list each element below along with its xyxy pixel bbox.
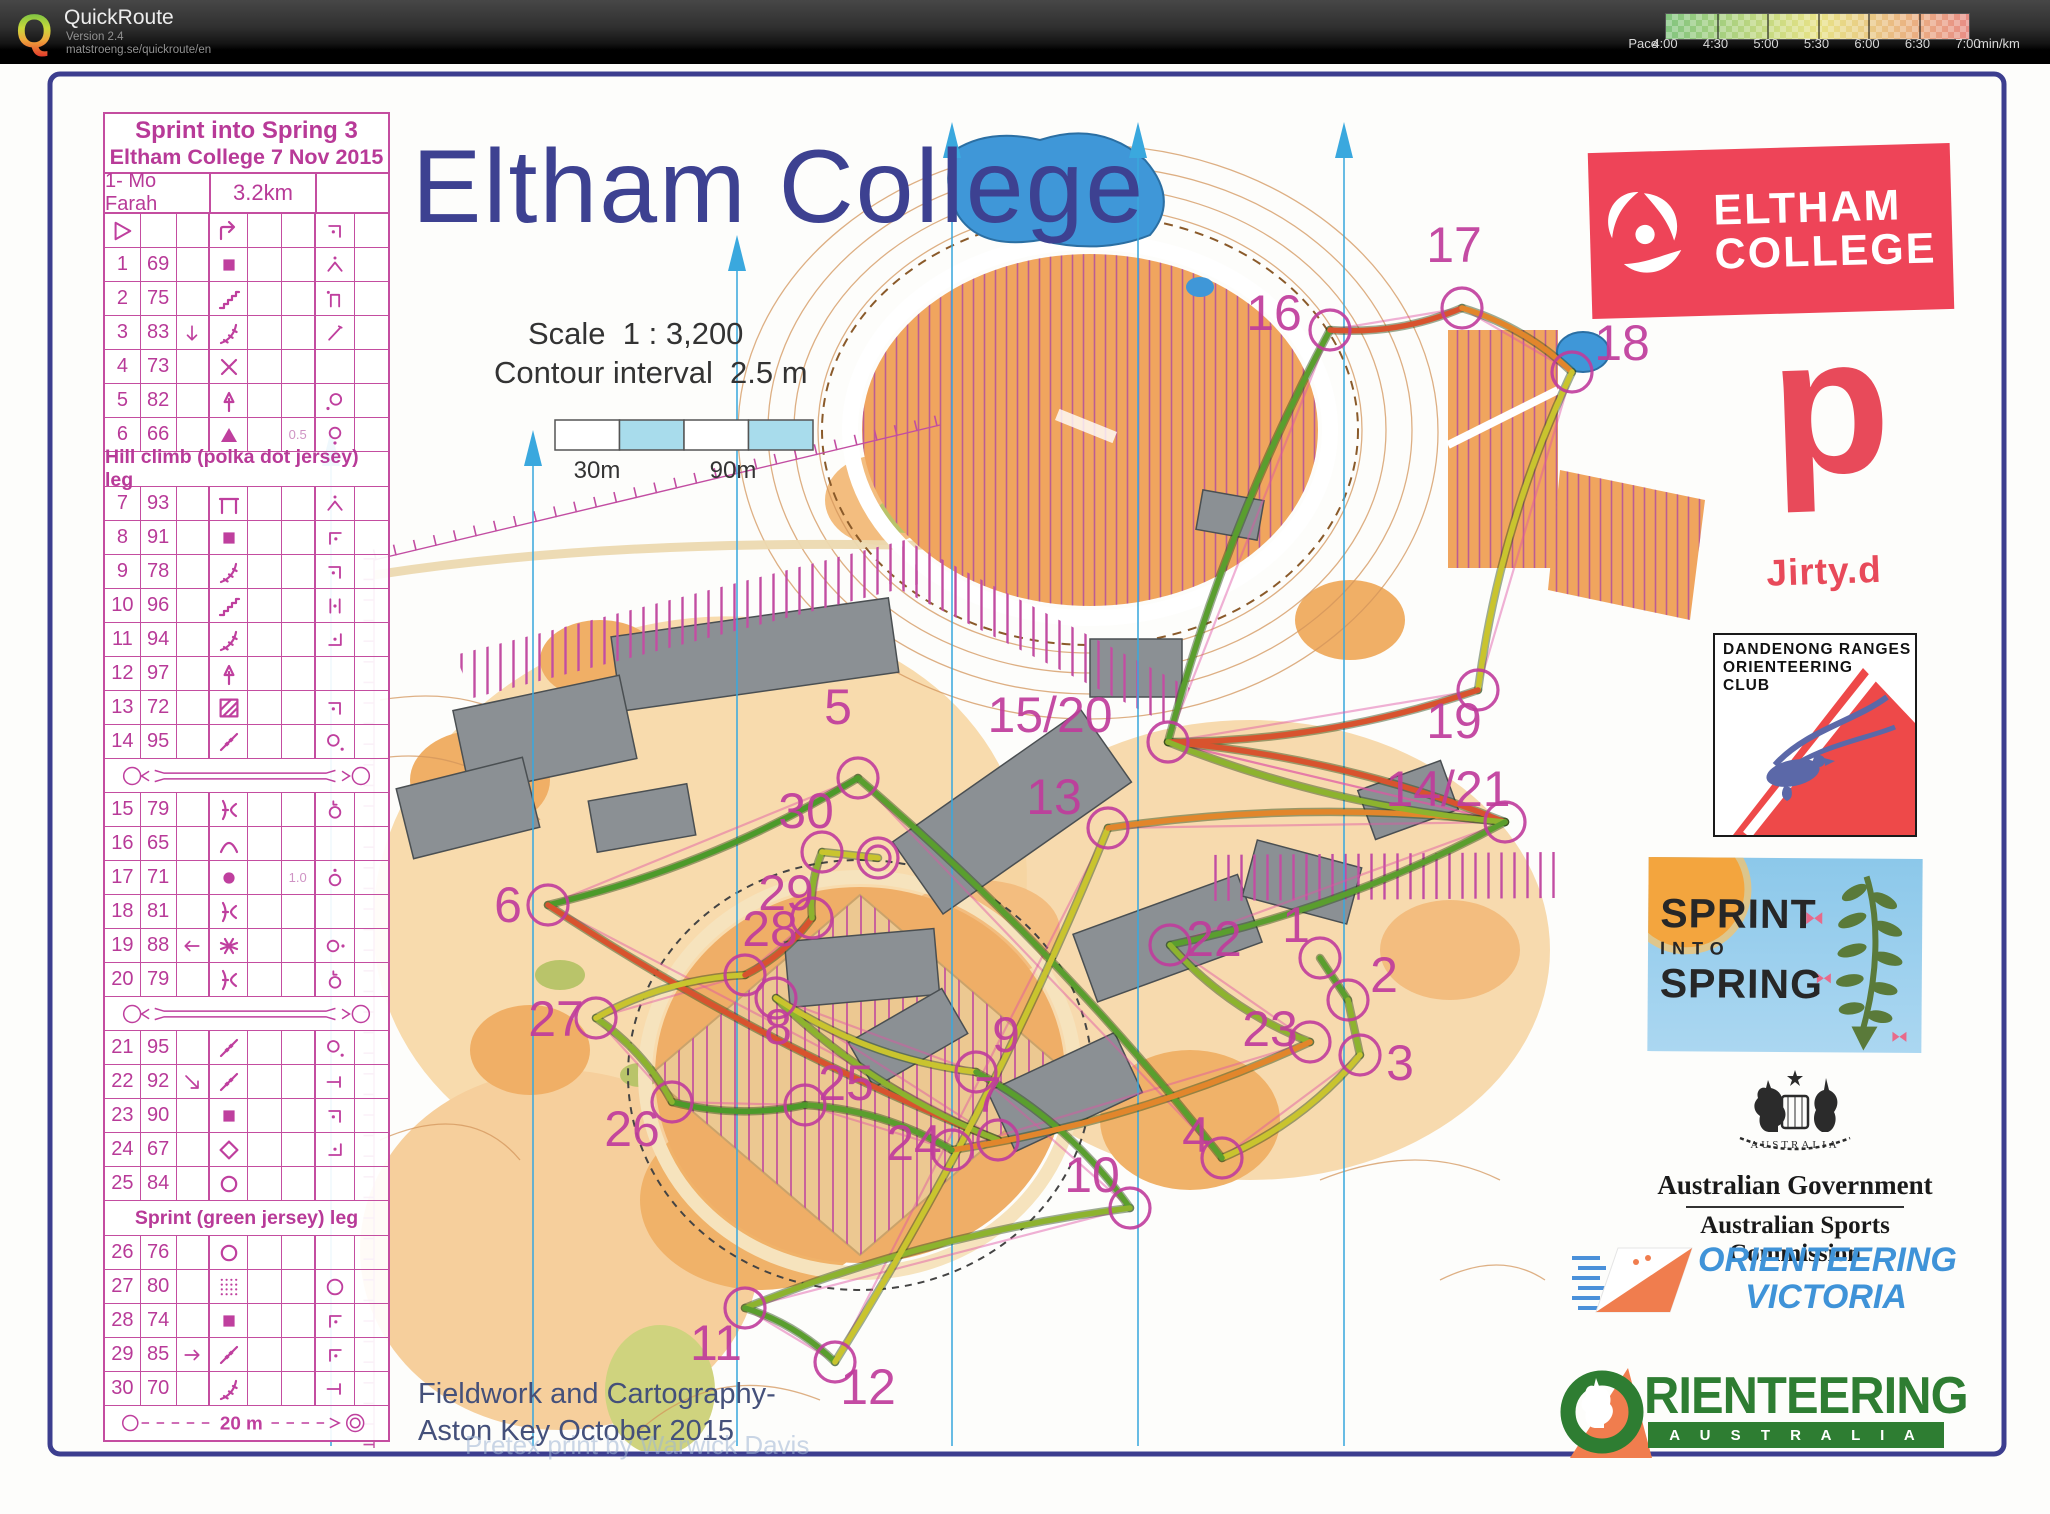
legend-tick-label: 6:00 xyxy=(1854,36,1879,51)
app-titlebar: Q QuickRoute Version 2.4 matstroeng.se/q… xyxy=(0,0,2050,64)
control-code: 80 xyxy=(141,1270,177,1303)
taped-route-row xyxy=(105,997,388,1031)
control-number: 14 xyxy=(105,725,141,758)
quickroute-window: { "header": { "app_title": "QuickRoute",… xyxy=(0,0,2050,1514)
control-row: 2985 xyxy=(105,1338,388,1372)
control-code: 70 xyxy=(141,1372,177,1405)
scale-bar: 30m90m xyxy=(555,420,813,484)
australian-government-logo: AUSTRALIA Australian Government Australi… xyxy=(1640,1068,1950,1268)
control-label-7: 7 xyxy=(974,1067,1002,1123)
control-row: 1881 xyxy=(105,895,388,929)
control-label-3: 3 xyxy=(1386,1035,1414,1091)
map-title: Eltham College xyxy=(412,128,1145,247)
legend-tick-label: 5:30 xyxy=(1804,36,1829,51)
control-number: 7 xyxy=(105,487,141,520)
control-row: 169 xyxy=(105,248,388,282)
control-row: 582 xyxy=(105,384,388,418)
control-row: 1372 xyxy=(105,691,388,725)
coat-of-arms-icon: AUSTRALIA xyxy=(1710,1068,1880,1168)
control-code: 91 xyxy=(141,521,177,554)
course-distance: 3.2km xyxy=(211,174,317,212)
control-row: 275 xyxy=(105,282,388,316)
control-number: 10 xyxy=(105,589,141,622)
control-row: 2584 xyxy=(105,1167,388,1201)
droc-club-name: DANDENONG RANGESORIENTEERINGCLUB xyxy=(1723,641,1911,695)
finish-row: 20 m xyxy=(105,1406,388,1440)
control-code: 67 xyxy=(141,1133,177,1166)
control-number: 9 xyxy=(105,555,141,588)
sprint-into-spring-logo: SPRINT INTO SPRING xyxy=(1647,857,1922,1053)
control-label-10: 10 xyxy=(1064,1147,1120,1203)
legend-tick-label: 4:30 xyxy=(1703,36,1728,51)
control-code: 78 xyxy=(141,555,177,588)
oa-word: RIENTEERING xyxy=(1644,1366,1968,1426)
control-row: 1665 xyxy=(105,827,388,861)
control-row: 3070 xyxy=(105,1372,388,1406)
control-row: 1297 xyxy=(105,657,388,691)
control-number: 23 xyxy=(105,1099,141,1132)
control-row: 1988 xyxy=(105,929,388,963)
control-code: 73 xyxy=(141,350,177,383)
dirty-d-letter: d xyxy=(1768,322,1895,550)
control-label-17: 17 xyxy=(1426,217,1482,273)
pace-legend-unit: min/km xyxy=(1978,36,2020,51)
control-label-14/21: 14/21 xyxy=(1385,761,1510,817)
eltham-line2: COLLEGE xyxy=(1714,226,1937,276)
control-label-12: 12 xyxy=(840,1359,896,1415)
control-code: 69 xyxy=(141,248,177,281)
sis-line3: SPRING xyxy=(1660,961,1824,1006)
control-code: 74 xyxy=(141,1304,177,1337)
dirty-d-text: Jirty.d xyxy=(1766,549,1883,595)
control-row: 2079 xyxy=(105,963,388,997)
control-label-2: 2 xyxy=(1370,947,1398,1003)
divider xyxy=(1686,1206,1904,1208)
control-row: 2874 xyxy=(105,1304,388,1338)
control-code: 88 xyxy=(141,929,177,962)
control-row: 978 xyxy=(105,555,388,589)
control-code: 79 xyxy=(141,793,177,826)
map-terrain: 1234567891011121314/2115/201617181922232… xyxy=(309,122,1705,1455)
control-number: 18 xyxy=(105,895,141,928)
control-label-18: 18 xyxy=(1594,315,1650,371)
oa-band: A U S T R A L I A xyxy=(1648,1422,1944,1448)
control-number: 28 xyxy=(105,1304,141,1337)
control-code: 82 xyxy=(141,384,177,417)
control-code: 84 xyxy=(141,1167,177,1200)
control-code: 75 xyxy=(141,282,177,315)
orienteering-australia-logo: RIENTEERING A U S T R A L I A xyxy=(1556,1350,1976,1466)
control-number: 17 xyxy=(105,861,141,894)
control-number: 26 xyxy=(105,1236,141,1269)
control-label-1: 1 xyxy=(1282,897,1310,953)
leg-header: Hill climb (polka dot jersey) leg xyxy=(105,452,388,487)
app-url[interactable]: matstroeng.se/quickroute/en xyxy=(66,44,211,56)
control-label-6: 6 xyxy=(494,877,522,933)
control-code: 92 xyxy=(141,1065,177,1098)
control-number: 13 xyxy=(105,691,141,724)
control-row: 2292 xyxy=(105,1065,388,1099)
control-row: 473 xyxy=(105,350,388,384)
ov-line1: ORIENTEERING xyxy=(1698,1242,1954,1279)
svg-text:30m: 30m xyxy=(574,457,621,484)
control-label-26: 26 xyxy=(604,1101,660,1157)
control-code: 97 xyxy=(141,657,177,690)
start-row xyxy=(105,214,388,248)
control-number: 20 xyxy=(105,963,141,996)
control-number: 8 xyxy=(105,521,141,554)
control-label-30: 30 xyxy=(778,783,834,839)
class-name: 1- Mo Farah xyxy=(105,174,211,212)
legend-tick-label: 7:00 xyxy=(1955,36,1980,51)
svg-text:AUSTRALIA: AUSTRALIA xyxy=(1750,1139,1839,1151)
control-label-4: 4 xyxy=(1182,1107,1210,1163)
control-number: 29 xyxy=(105,1338,141,1371)
control-code: 90 xyxy=(141,1099,177,1132)
map-scale-text: Scale 1 : 3,200 xyxy=(528,316,743,352)
control-code: 95 xyxy=(141,1031,177,1064)
control-code: 65 xyxy=(141,827,177,860)
control-label-27: 27 xyxy=(528,991,584,1047)
control-number: 1 xyxy=(105,248,141,281)
control-number: 30 xyxy=(105,1372,141,1405)
control-number: 24 xyxy=(105,1133,141,1166)
control-code: 79 xyxy=(141,963,177,996)
aus-gov-title: Australian Government xyxy=(1640,1170,1950,1201)
eltham-college-logo: ELTHAM COLLEGE xyxy=(1588,143,1954,319)
control-code: 96 xyxy=(141,589,177,622)
dandenong-ranges-oc-logo: DANDENONG RANGESORIENTEERINGCLUB xyxy=(1713,633,1917,837)
control-number: 2 xyxy=(105,282,141,315)
svg-text:90m: 90m xyxy=(710,457,757,484)
control-row: 2195 xyxy=(105,1031,388,1065)
control-row: 1194 xyxy=(105,623,388,657)
sis-line2: INTO xyxy=(1660,935,1823,962)
taped-route-row xyxy=(105,759,388,793)
control-row: 2467 xyxy=(105,1133,388,1167)
app-title: QuickRoute xyxy=(64,6,174,30)
control-number: 3 xyxy=(105,316,141,349)
oa-emblem-icon xyxy=(1556,1350,1656,1466)
dirty-d-logo: d Jirty.d xyxy=(1751,349,1939,595)
control-label-5: 5 xyxy=(824,679,852,735)
control-code: 85 xyxy=(141,1338,177,1371)
control-number: 15 xyxy=(105,793,141,826)
control-row: 383 xyxy=(105,316,388,350)
control-row: 2390 xyxy=(105,1099,388,1133)
quickroute-logo-icon: Q xyxy=(16,2,53,60)
print-watermark: Pretex print by Warwick Davis xyxy=(465,1430,809,1461)
control-label-29: 29 xyxy=(758,865,814,921)
pace-legend-label: Pace xyxy=(1598,36,1658,51)
eltham-swirl-icon xyxy=(1589,178,1702,291)
control-row: 1096 xyxy=(105,589,388,623)
control-label-22: 22 xyxy=(1186,911,1242,967)
control-number: 19 xyxy=(105,929,141,962)
control-label-19: 19 xyxy=(1426,693,1482,749)
control-label-24: 24 xyxy=(886,1115,942,1171)
control-row: 793 xyxy=(105,487,388,521)
control-row: 1579 xyxy=(105,793,388,827)
control-label-13: 13 xyxy=(1026,769,1082,825)
control-label-9: 9 xyxy=(992,1007,1020,1063)
svg-text:20 m: 20 m xyxy=(220,1413,263,1434)
control-label-25: 25 xyxy=(818,1055,874,1111)
control-number: 11 xyxy=(105,623,141,656)
control-row: 1495 xyxy=(105,725,388,759)
control-label-8: 8 xyxy=(764,999,792,1055)
sheet-title: Sprint into Spring 3Eltham College 7 Nov… xyxy=(105,114,388,174)
control-number: 12 xyxy=(105,657,141,690)
control-number: 21 xyxy=(105,1031,141,1064)
legend-tick-label: 6:30 xyxy=(1905,36,1930,51)
control-code: 93 xyxy=(141,487,177,520)
map-contour-text: Contour interval 2.5 m xyxy=(494,355,808,391)
sis-line1: SPRINT xyxy=(1660,891,1824,936)
control-number: 25 xyxy=(105,1167,141,1200)
leg-header: Sprint (green jersey) leg xyxy=(105,1201,388,1236)
control-row: 891 xyxy=(105,521,388,555)
control-description-sheet: Sprint into Spring 3Eltham College 7 Nov… xyxy=(103,112,390,1442)
control-number: 4 xyxy=(105,350,141,383)
control-number: 22 xyxy=(105,1065,141,1098)
ov-flag-icon xyxy=(1570,1240,1698,1330)
control-number: 5 xyxy=(105,384,141,417)
control-code: 81 xyxy=(141,895,177,928)
control-row: 2780 xyxy=(105,1270,388,1304)
control-label-11: 11 xyxy=(690,1315,742,1371)
app-version: Version 2.4 xyxy=(66,31,124,43)
control-code: 95 xyxy=(141,725,177,758)
legend-tick-label: 5:00 xyxy=(1753,36,1778,51)
ov-line2: VICTORIA xyxy=(1698,1279,1954,1316)
control-label-15/20: 15/20 xyxy=(987,687,1112,743)
control-row: 2676 xyxy=(105,1236,388,1270)
control-number: 27 xyxy=(105,1270,141,1303)
control-code: 83 xyxy=(141,316,177,349)
sheet-class-row: 1- Mo Farah3.2km xyxy=(105,174,388,214)
legend-tick-label: 4:00 xyxy=(1652,36,1677,51)
control-number: 16 xyxy=(105,827,141,860)
orienteering-victoria-logo: ORIENTEERING VICTORIA xyxy=(1570,1240,1962,1332)
control-code: 71 xyxy=(141,861,177,894)
control-code: 94 xyxy=(141,623,177,656)
control-code: 76 xyxy=(141,1236,177,1269)
control-label-16: 16 xyxy=(1246,285,1302,341)
control-label-23: 23 xyxy=(1242,1001,1298,1057)
control-row: 17711.0 xyxy=(105,861,388,895)
control-code: 72 xyxy=(141,691,177,724)
